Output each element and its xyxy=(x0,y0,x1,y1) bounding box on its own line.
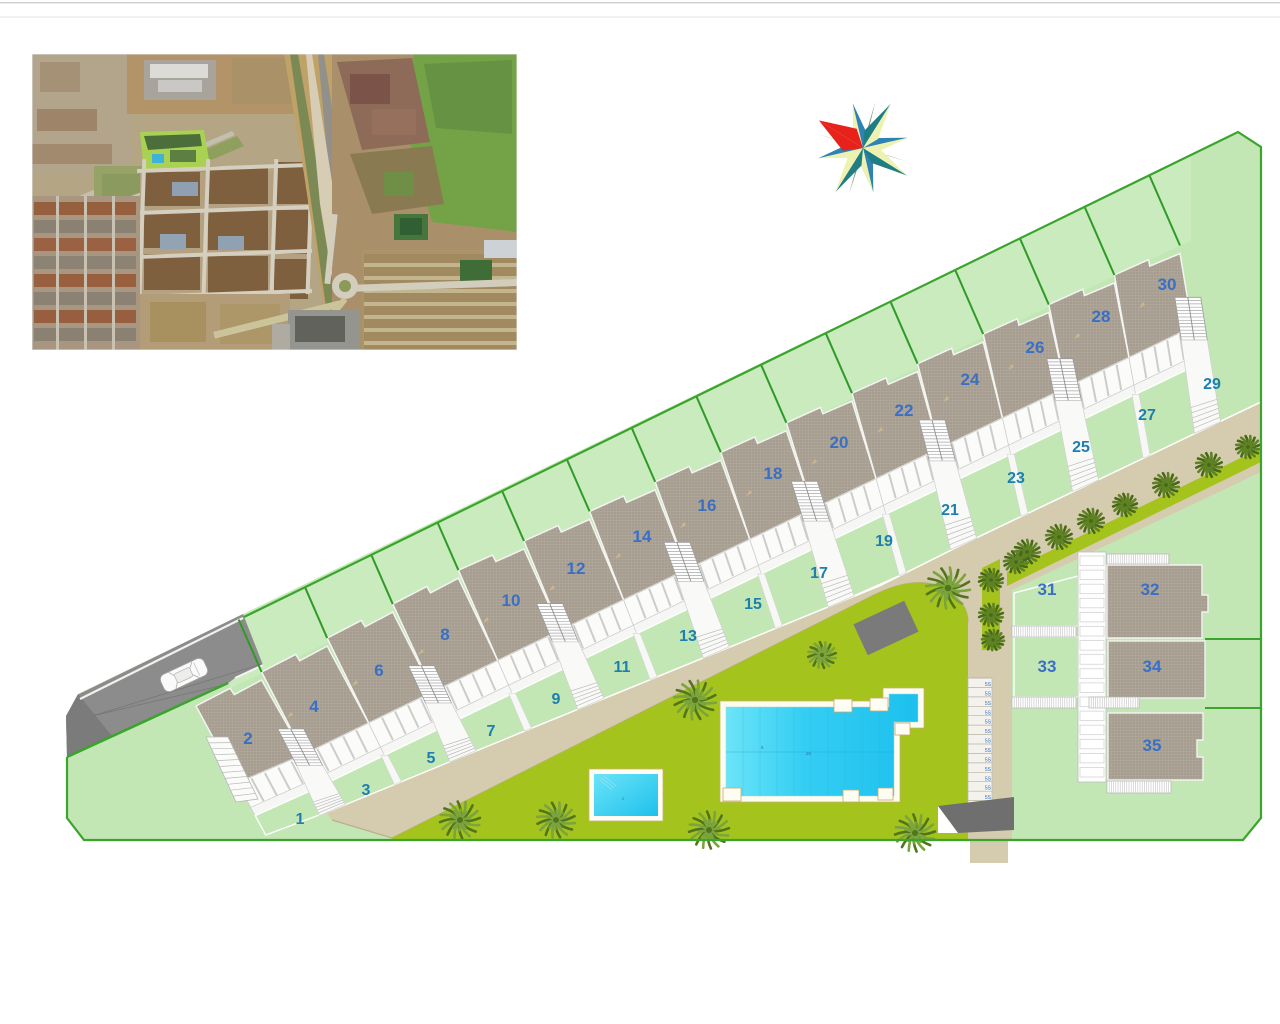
svg-text:35: 35 xyxy=(1143,736,1162,755)
svg-text:20: 20 xyxy=(830,433,849,452)
svg-text:22: 22 xyxy=(895,401,914,420)
svg-text:9: 9 xyxy=(552,691,561,708)
svg-text:26: 26 xyxy=(1026,338,1045,357)
svg-text:18: 18 xyxy=(764,464,783,483)
svg-text:5S: 5S xyxy=(985,720,992,726)
svg-text:34: 34 xyxy=(1143,657,1162,676)
svg-text:5S: 5S xyxy=(985,682,992,688)
svg-text:16: 16 xyxy=(698,496,717,515)
svg-text:5S: 5S xyxy=(985,691,992,697)
svg-text:12: 12 xyxy=(567,559,586,578)
svg-text:2: 2 xyxy=(243,729,252,748)
svg-text:5S: 5S xyxy=(985,710,992,716)
svg-text:27: 27 xyxy=(1138,407,1156,424)
svg-text:25: 25 xyxy=(806,751,812,756)
svg-text:19: 19 xyxy=(875,533,893,550)
svg-text:23: 23 xyxy=(1007,470,1025,487)
svg-text:4: 4 xyxy=(309,697,319,716)
svg-text:5S: 5S xyxy=(985,776,992,782)
svg-text:5S: 5S xyxy=(985,729,992,735)
svg-text:11: 11 xyxy=(614,659,631,676)
svg-text:14: 14 xyxy=(633,527,652,546)
svg-text:5: 5 xyxy=(427,750,436,767)
svg-text:6: 6 xyxy=(374,661,383,680)
svg-text:28: 28 xyxy=(1092,307,1111,326)
svg-text:10: 10 xyxy=(502,591,521,610)
svg-text:5S: 5S xyxy=(985,739,992,745)
svg-text:8: 8 xyxy=(440,625,449,644)
svg-text:5S: 5S xyxy=(985,757,992,763)
svg-text:13: 13 xyxy=(679,628,697,645)
svg-text:5S: 5S xyxy=(985,748,992,754)
svg-text:32: 32 xyxy=(1141,580,1160,599)
svg-text:30: 30 xyxy=(1158,275,1177,294)
svg-text:17: 17 xyxy=(810,565,828,582)
svg-text:24: 24 xyxy=(961,370,980,389)
svg-text:3: 3 xyxy=(362,782,371,799)
svg-text:21: 21 xyxy=(941,502,959,519)
svg-text:1: 1 xyxy=(296,811,305,828)
svg-text:5S: 5S xyxy=(985,786,992,792)
svg-text:29: 29 xyxy=(1203,376,1221,393)
svg-text:5S: 5S xyxy=(985,767,992,773)
svg-text:31: 31 xyxy=(1038,580,1057,599)
svg-text:25: 25 xyxy=(1072,439,1090,456)
svg-text:15: 15 xyxy=(744,596,762,613)
svg-text:5S: 5S xyxy=(985,701,992,707)
svg-text:7: 7 xyxy=(487,723,496,740)
svg-text:33: 33 xyxy=(1038,657,1057,676)
